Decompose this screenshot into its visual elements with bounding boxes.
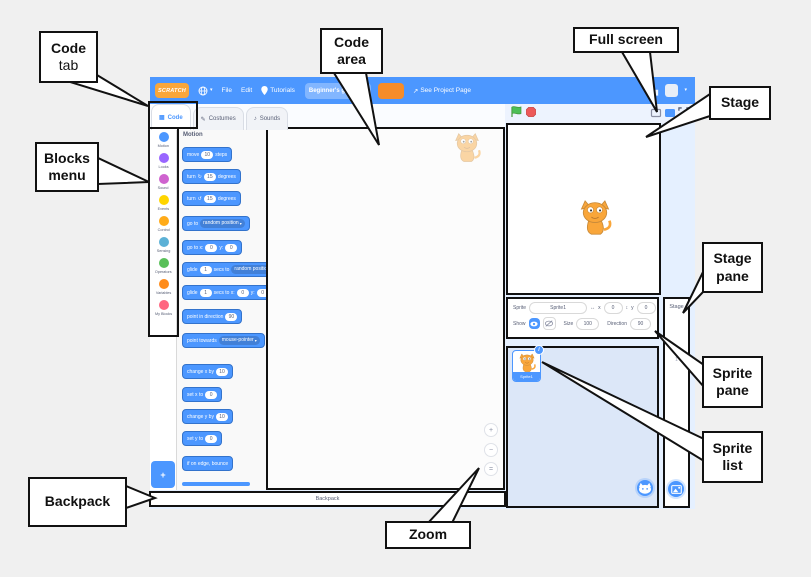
globe-icon xyxy=(198,86,208,96)
block-dropdown[interactable]: random position▾ xyxy=(231,265,267,274)
see-project-page-link[interactable]: ↗ See Project Page xyxy=(413,87,471,95)
category-color-dot xyxy=(159,174,169,184)
sprite-info-badge[interactable]: i xyxy=(534,345,544,355)
stage-selector-pane[interactable]: Stage 1 xyxy=(663,297,690,508)
callout-line: area xyxy=(337,51,366,69)
y-position-input[interactable]: 0 xyxy=(637,302,656,314)
block-text: secs to x: xyxy=(214,290,235,296)
block-text: glide xyxy=(187,267,198,273)
palette-category-header: Motion xyxy=(183,132,203,138)
size-input[interactable]: 100 xyxy=(576,318,599,330)
block-number-input[interactable]: 0 xyxy=(205,435,217,443)
category-color-dot xyxy=(159,153,169,163)
caret-down-icon: ▾ xyxy=(240,219,242,228)
language-selector[interactable]: ▾ xyxy=(198,86,213,96)
share-button[interactable] xyxy=(378,83,404,99)
stop-button[interactable] xyxy=(526,107,536,117)
block-dropdown-value: mouse-pointer xyxy=(222,336,254,345)
block-text: turn xyxy=(187,174,196,180)
rotate-icon: ↺ xyxy=(198,196,202,202)
category-sound[interactable]: Sound xyxy=(150,171,177,192)
backpack-bar[interactable]: Backpack xyxy=(149,491,506,507)
hide-sprite-button[interactable] xyxy=(543,317,556,330)
block-text: set y to xyxy=(187,436,203,442)
zoom-reset-button[interactable]: = xyxy=(484,462,498,476)
category-motion[interactable]: Motion xyxy=(150,129,177,150)
tab-label: Costumes xyxy=(209,116,236,122)
y-arrows-icon: ↕ xyxy=(626,305,629,311)
folder-icon[interactable] xyxy=(648,86,659,96)
x-label: x xyxy=(598,305,601,311)
blocks-category-menu: MotionLooksSoundEventsControlSensingOper… xyxy=(150,129,177,490)
block-text: change x by xyxy=(187,369,214,375)
caret-down-icon: ▾ xyxy=(255,336,257,345)
callout-line: Sprite xyxy=(713,440,753,458)
block-text: go to x: xyxy=(187,245,203,251)
code-area-canvas[interactable] xyxy=(266,127,505,490)
block-text: secs to xyxy=(214,267,230,273)
block-dropdown-value: random position xyxy=(234,265,267,274)
full-screen-button[interactable] xyxy=(678,107,690,119)
category-color-dot xyxy=(159,300,169,310)
block-text: go to xyxy=(187,221,198,227)
stage-pane-title: Stage xyxy=(665,304,688,310)
palette-block[interactable]: if on edge, bounce xyxy=(182,456,233,471)
tutorials-label: Tutorials xyxy=(270,87,295,94)
cat-sprite-thumbnail xyxy=(517,352,537,374)
sprite-info-pane: Sprite Sprite1 ↔ x 0 ↕ y 0 Show Size xyxy=(506,297,659,339)
block-text: change y by xyxy=(187,414,214,420)
callout-sprite-list: Spritelist xyxy=(702,431,763,483)
user-avatar[interactable] xyxy=(665,84,678,97)
size-label: Size xyxy=(564,321,574,327)
code-blocks-icon: ▦ xyxy=(159,114,165,121)
rotate-icon: ↻ xyxy=(198,174,202,180)
show-label: Show xyxy=(513,321,526,327)
block-number-input[interactable]: 15 xyxy=(204,195,216,203)
category-label: Looks xyxy=(158,164,168,169)
block-text: move xyxy=(187,152,199,158)
sprite-label: Sprite xyxy=(513,305,526,311)
large-stage-button[interactable] xyxy=(664,107,676,119)
category-color-dot xyxy=(159,216,169,226)
callout-line: Backpack xyxy=(45,493,110,511)
block-number-input[interactable]: 0 xyxy=(237,289,249,297)
category-sensing[interactable]: Sensing xyxy=(150,234,177,255)
add-extension-button[interactable]: + xyxy=(151,461,175,488)
callout-sprite-pane: Spritepane xyxy=(702,356,763,408)
category-color-dot xyxy=(159,237,169,247)
block-number-input[interactable]: 1 xyxy=(200,289,212,297)
palette-block[interactable]: point towardsmouse-pointer▾ xyxy=(182,333,265,348)
block-text: set x to xyxy=(187,392,203,398)
tab-label: Sounds xyxy=(260,116,280,122)
menu-edit[interactable]: Edit xyxy=(241,87,252,94)
block-text: y: xyxy=(219,245,223,251)
block-number-input[interactable]: 15 xyxy=(204,173,216,181)
callout-line: Blocks xyxy=(44,150,90,168)
callout-line: Zoom xyxy=(409,526,447,544)
y-label: y xyxy=(631,305,634,311)
tab-costumes[interactable]: ✎Costumes xyxy=(193,107,244,130)
category-color-dot xyxy=(159,195,169,205)
account-menu-caret-icon[interactable]: ▾ xyxy=(684,88,687,93)
sprite-name-input[interactable]: Sprite1 xyxy=(529,302,587,314)
palette-block[interactable]: turn↺15degrees xyxy=(182,191,241,206)
block-text: steps xyxy=(215,152,227,158)
callout-line: pane xyxy=(716,268,749,286)
block-text: degrees xyxy=(218,174,236,180)
sprite-watermark-icon xyxy=(452,130,482,166)
category-label: Motion xyxy=(158,143,169,148)
palette-block[interactable]: go to x:0y:0 xyxy=(182,240,242,255)
category-label: Events xyxy=(158,206,170,211)
callout-backpack: Backpack xyxy=(28,477,127,527)
category-color-dot xyxy=(159,279,169,289)
category-events[interactable]: Events xyxy=(150,192,177,213)
direction-label: Direction xyxy=(607,321,627,327)
x-position-input[interactable]: 0 xyxy=(604,302,623,314)
block-text: glide xyxy=(187,290,198,296)
callout-line: Sprite xyxy=(713,365,753,383)
category-label: Variables xyxy=(156,290,171,295)
block-dropdown[interactable]: mouse-pointer▾ xyxy=(219,336,260,345)
category-label: My Blocks xyxy=(155,311,172,316)
block-dropdown[interactable]: random position▾ xyxy=(200,219,245,228)
see-project-page-label: See Project Page xyxy=(420,87,471,94)
external-link-icon: ↗ xyxy=(413,87,418,95)
brush-icon: ✎ xyxy=(201,116,206,123)
callout-line: Stage xyxy=(713,250,751,268)
callout-code-tab: Codetab xyxy=(39,31,98,83)
palette-block[interactable]: point in direction90 xyxy=(182,309,242,324)
eye-visible-icon xyxy=(530,321,538,327)
callout-line: Stage xyxy=(721,94,759,112)
block-text: point in direction xyxy=(187,314,223,320)
tutorials-pin-icon xyxy=(261,86,268,95)
project-name-input[interactable]: Beginner's guide xyxy=(305,83,371,99)
block-text: if on edge, bounce xyxy=(187,461,228,467)
callout-line: pane xyxy=(716,382,749,400)
category-label: Control xyxy=(157,227,169,232)
menu-items: FileEdit xyxy=(213,87,253,94)
category-my-blocks[interactable]: My Blocks xyxy=(150,297,177,318)
block-number-input[interactable]: 10 xyxy=(216,413,228,421)
block-palette: Motion move10stepsturn↻15degreesturn↺15d… xyxy=(177,129,267,490)
palette-block[interactable]: change y by10 xyxy=(182,409,233,424)
eye-hidden-icon xyxy=(545,320,553,327)
category-looks[interactable]: Looks xyxy=(150,150,177,171)
small-stage-button[interactable] xyxy=(650,107,662,119)
backdrops-count: 1 xyxy=(665,357,688,363)
block-text: degrees xyxy=(218,196,236,202)
block-number-input[interactable]: 90 xyxy=(225,313,237,321)
sprite-thumbnail-name: Sprite1 xyxy=(513,372,540,381)
tab-code[interactable]: ▦Code xyxy=(151,104,191,130)
scratch-logo[interactable]: SCRATCH xyxy=(155,83,189,98)
callout-line: Code xyxy=(334,34,369,52)
category-color-dot xyxy=(159,258,169,268)
block-number-input[interactable]: 0 xyxy=(205,391,217,399)
callout-line: Code xyxy=(51,40,86,58)
zoom-in-button[interactable]: + xyxy=(484,423,498,437)
palette-block[interactable]: turn↻15degrees xyxy=(182,169,241,184)
tutorials-menu[interactable]: Tutorials xyxy=(261,86,295,95)
direction-input[interactable]: 90 xyxy=(630,318,651,330)
callout-line: menu xyxy=(48,167,85,185)
category-operators[interactable]: Operators xyxy=(150,255,177,276)
cat-sprite-on-stage[interactable] xyxy=(577,196,613,240)
callout-blocks-menu: Blocksmenu xyxy=(35,142,99,192)
cat-face-icon xyxy=(638,482,652,494)
callout-line: list xyxy=(722,457,742,475)
block-text: point towards xyxy=(187,338,217,344)
x-arrows-icon: ↔ xyxy=(590,305,595,311)
block-text: turn xyxy=(187,196,196,202)
backdrop-icon xyxy=(671,485,682,494)
palette-block[interactable]: glide1secs torandom position▾ xyxy=(182,262,267,277)
palette-block[interactable]: set y to0 xyxy=(182,431,222,446)
block-text: y: xyxy=(251,290,255,296)
callout-stage-pane: Stagepane xyxy=(702,242,763,293)
menu-bar: SCRATCH ▾ FileEdit Tutorials Beginner's … xyxy=(150,77,695,104)
tab-sounds[interactable]: ♪Sounds xyxy=(246,107,288,130)
category-color-dot xyxy=(159,132,169,142)
zoom-out-button[interactable]: − xyxy=(484,443,498,457)
menu-file[interactable]: File xyxy=(222,87,232,94)
palette-block[interactable]: go torandom position▾ xyxy=(182,216,250,231)
callout-line: Full screen xyxy=(589,31,663,49)
block-number-input[interactable]: 1 xyxy=(200,266,212,274)
callout-line: tab xyxy=(59,57,78,75)
add-sprite-button[interactable] xyxy=(637,480,653,496)
green-flag-button[interactable] xyxy=(511,106,522,118)
editor-tabs: ▦Code✎Costumes♪Sounds xyxy=(151,104,288,130)
category-control[interactable]: Control xyxy=(150,213,177,234)
palette-block[interactable]: glide1secs to x:0y:0 xyxy=(182,285,267,300)
speaker-icon: ♪ xyxy=(254,116,257,122)
palette-block[interactable]: set x to0 xyxy=(182,387,222,402)
palette-block[interactable]: change x by10 xyxy=(182,364,233,379)
callout-zoom: Zoom xyxy=(385,521,471,549)
callout-full-screen: Full screen xyxy=(573,27,679,53)
category-label: Operators xyxy=(155,269,172,274)
palette-block-partial[interactable] xyxy=(182,482,250,486)
palette-block[interactable]: move10steps xyxy=(182,147,232,162)
tab-label: Code xyxy=(168,115,183,121)
block-number-input[interactable]: 10 xyxy=(216,368,228,376)
add-backdrop-button[interactable] xyxy=(668,481,684,497)
category-label: Sound xyxy=(158,185,169,190)
block-number-input[interactable]: 0 xyxy=(225,244,237,252)
annotated-scratch-screenshot: SCRATCH ▾ FileEdit Tutorials Beginner's … xyxy=(0,0,811,577)
block-number-input[interactable]: 10 xyxy=(201,151,213,159)
category-label: Sensing xyxy=(157,248,171,253)
show-sprite-button[interactable] xyxy=(529,318,540,329)
callout-stage: Stage xyxy=(709,86,771,120)
block-dropdown-value: random position xyxy=(203,219,239,228)
category-variables[interactable]: Variables xyxy=(150,276,177,297)
callout-code-area: Codearea xyxy=(320,28,383,74)
block-number-input[interactable]: 0 xyxy=(205,244,217,252)
